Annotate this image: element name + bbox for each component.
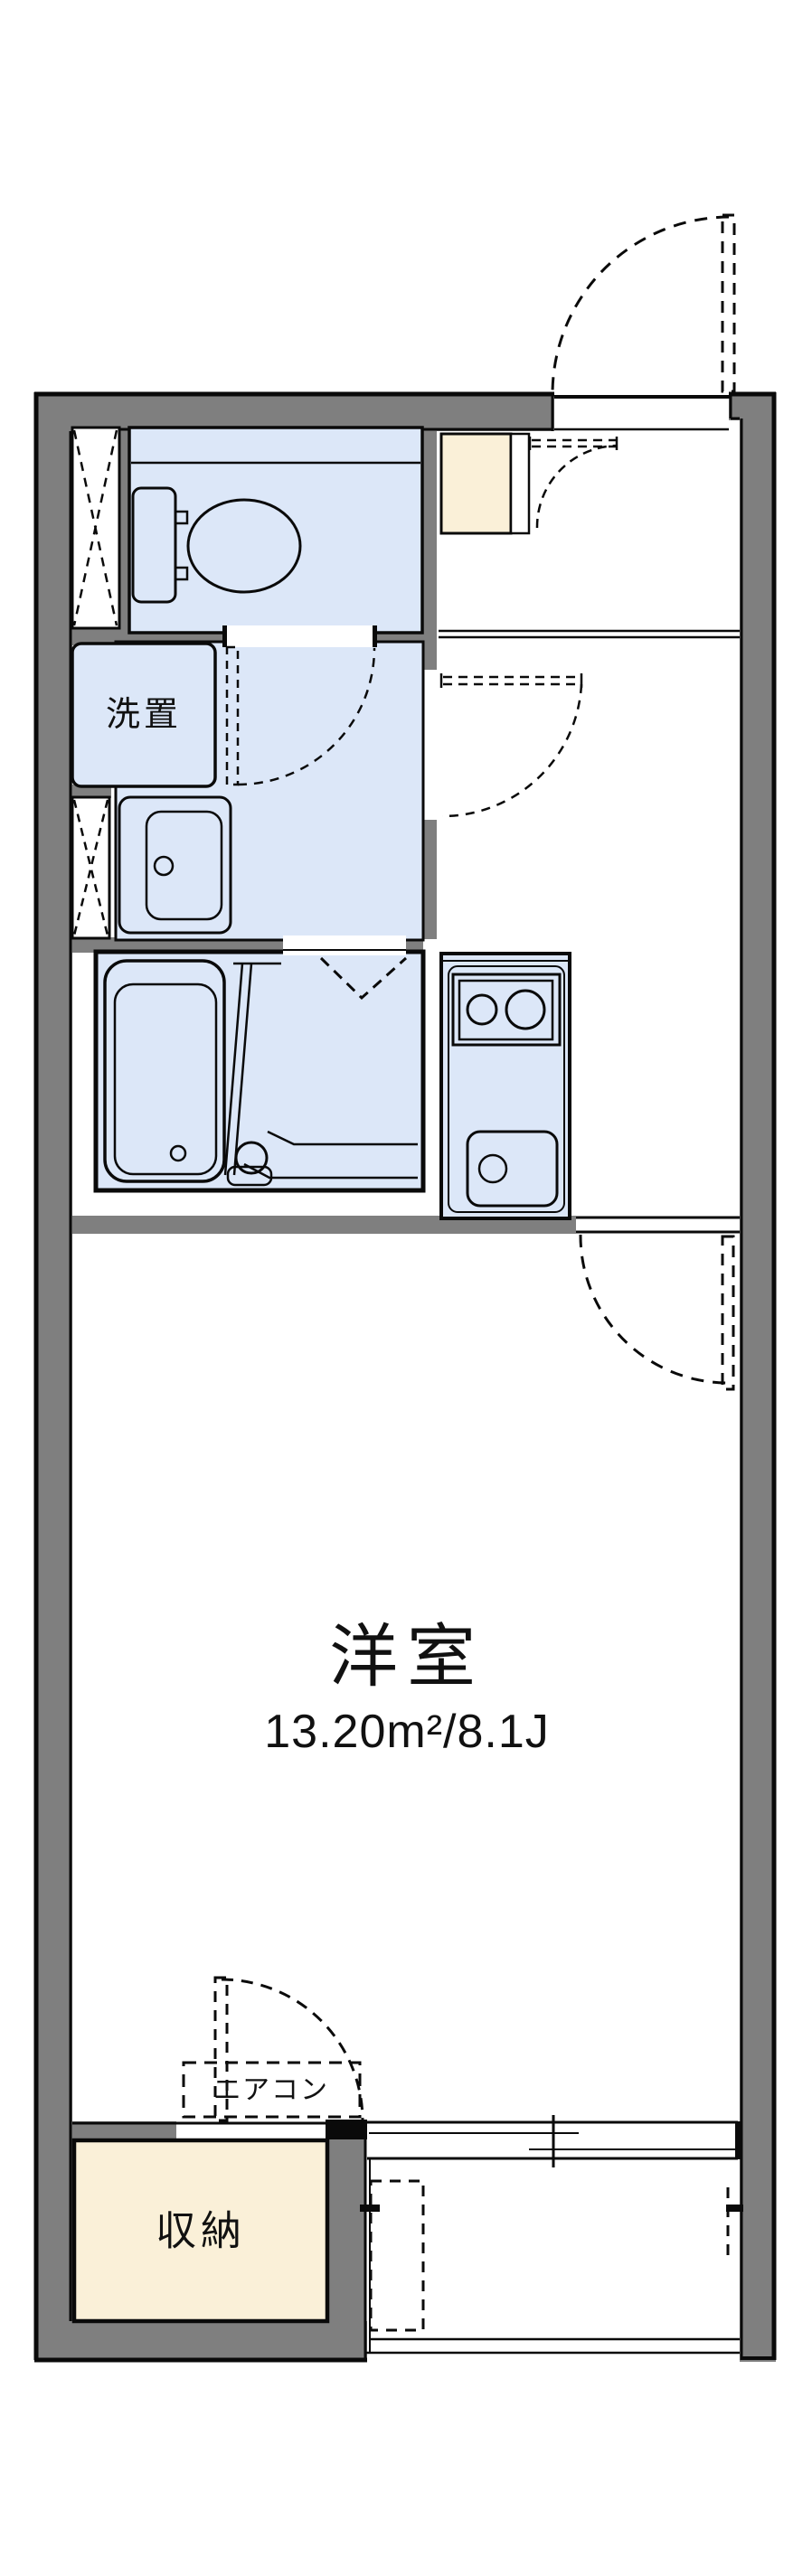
genkan-step-line [439,631,740,637]
sliding-window-icon [367,2115,741,2167]
washroom [72,625,581,940]
storage-opening [176,2125,326,2138]
floor-plan-drawing [0,0,812,2576]
bathroom [96,935,423,1190]
kitchen [441,954,570,1218]
floor-plan: 洗置 洋室 13.20m²/8.1J エアコン 収納 [0,0,812,2576]
entrance-opening [554,397,729,430]
storage-label: 収納 [156,2211,246,2252]
toilet-door-opening [224,625,375,647]
bathroom-door-opening [283,935,406,955]
shoe-cabinet [441,434,511,533]
washroom-hall-door-icon [441,673,581,816]
entry-door-swing-icon [530,437,617,528]
aircon-label: エアコン [213,2077,329,2104]
main-room-label: 洋室 [329,1623,485,1692]
main-room-area-label: 13.20m²/8.1J [264,1708,550,1755]
balcony [360,2115,743,2353]
main-room-door [576,1216,740,1389]
entrance-door-icon [552,215,734,394]
outdoor-unit-icon [360,2181,423,2330]
laundry-label: 洗置 [106,698,182,732]
